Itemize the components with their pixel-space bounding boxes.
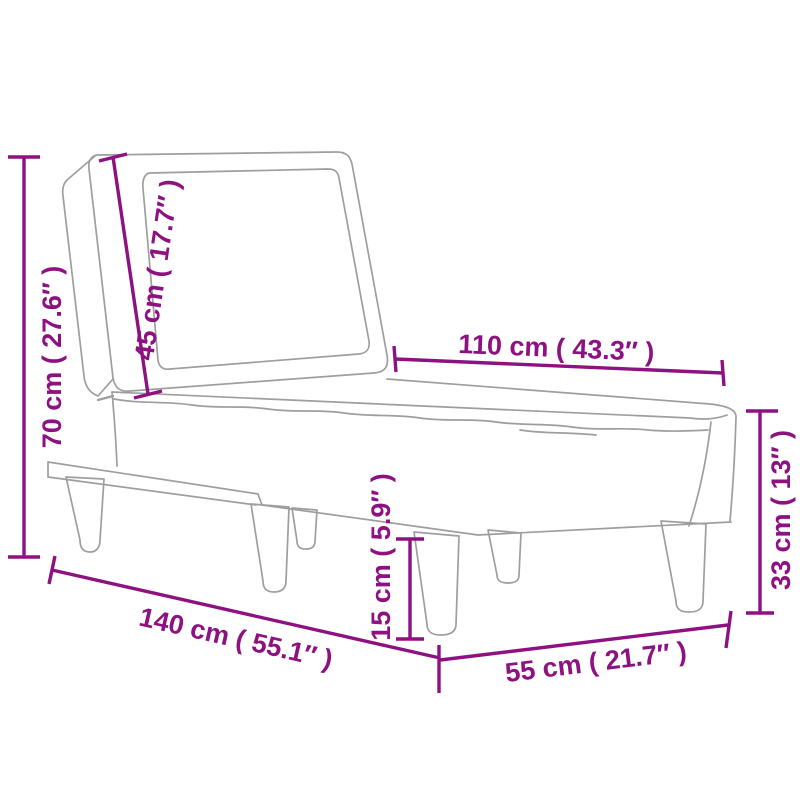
- leg-front-right: [661, 521, 706, 612]
- seat-left-edge: [112, 392, 117, 466]
- dim-total-height-label: 70 cm ( 27.6″ ): [37, 266, 67, 449]
- chaise-dimension-diagram: 70 cm ( 27.6″ ) 45 cm ( 17.7″ ) 110 cm (…: [0, 0, 800, 800]
- dim-backrest-height-label: 45 cm ( 17.7″ ): [129, 177, 185, 362]
- dim-total-height-line: [8, 157, 40, 557]
- seat-cushion-seam-2: [520, 430, 596, 435]
- dim-leg-height-label: 15 cm ( 5.9″ ): [366, 473, 396, 641]
- leg-back-middle: [488, 530, 521, 583]
- seat-end-corner-curve: [689, 422, 711, 526]
- leg-front-middle: [414, 532, 459, 635]
- leg-front-left: [251, 504, 289, 592]
- dim-leg-height-line: [396, 539, 424, 639]
- dim-seat-height-label: 33 cm ( 13″ ): [766, 430, 796, 590]
- leg-rear-left: [66, 477, 104, 552]
- dim-seat-width-label: 55 cm ( 21.7″ ): [503, 636, 688, 688]
- diagram-canvas: 70 cm ( 27.6″ ) 45 cm ( 17.7″ ) 110 cm (…: [0, 0, 800, 800]
- backrest-hinge-mark: [98, 396, 113, 400]
- frame-rail: [48, 462, 262, 505]
- seat-back-edge: [387, 379, 736, 521]
- backrest-side-panel: [63, 156, 113, 396]
- leg-back-left: [292, 508, 317, 549]
